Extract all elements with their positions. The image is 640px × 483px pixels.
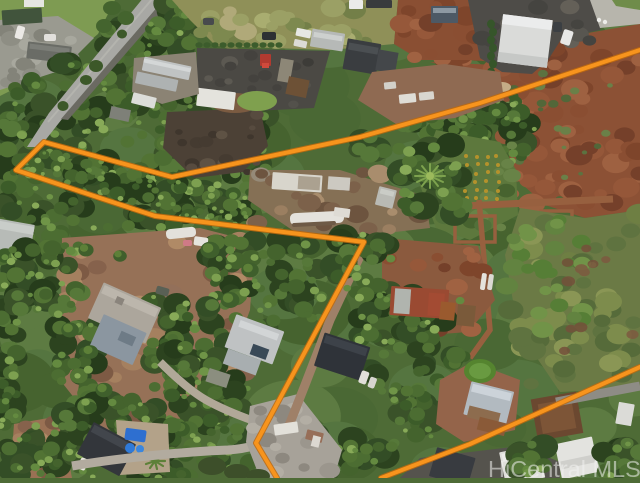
svg-text:HiCentral MLS: HiCentral MLS [488,456,640,478]
